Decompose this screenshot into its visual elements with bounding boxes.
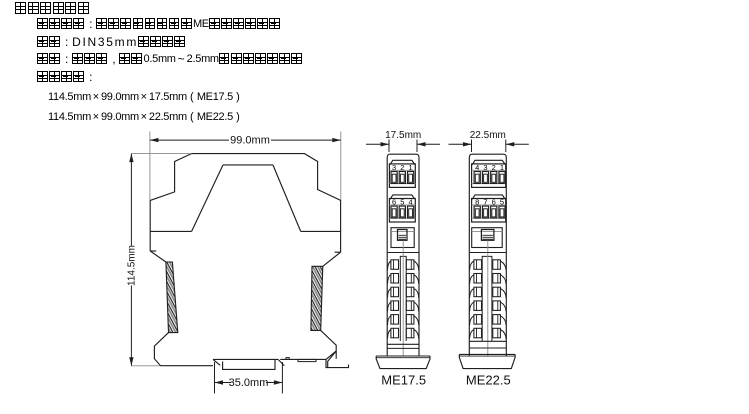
svg-text:4: 4 — [409, 198, 413, 207]
svg-text:99.0mm: 99.0mm — [230, 135, 270, 147]
svg-text:3: 3 — [392, 163, 396, 172]
svg-text:4: 4 — [475, 163, 479, 172]
svg-text:2: 2 — [492, 163, 496, 172]
svg-text:8: 8 — [475, 198, 479, 207]
svg-text:ME22.5: ME22.5 — [466, 373, 511, 388]
svg-text:35.0mm: 35.0mm — [229, 377, 269, 389]
svg-text:6: 6 — [492, 198, 496, 207]
svg-text:3: 3 — [483, 163, 487, 172]
svg-text:1: 1 — [500, 163, 504, 172]
svg-text:7: 7 — [483, 198, 487, 207]
svg-text:2: 2 — [400, 163, 404, 172]
svg-text:1: 1 — [409, 163, 413, 172]
svg-text:ME17.5: ME17.5 — [381, 373, 426, 388]
svg-text:5: 5 — [400, 198, 404, 207]
svg-text:5: 5 — [500, 198, 504, 207]
svg-text:6: 6 — [392, 198, 396, 207]
svg-text:22.5mm: 22.5mm — [470, 130, 506, 141]
svg-text:114.5mm: 114.5mm — [127, 245, 138, 286]
svg-text:17.5mm: 17.5mm — [385, 130, 421, 141]
